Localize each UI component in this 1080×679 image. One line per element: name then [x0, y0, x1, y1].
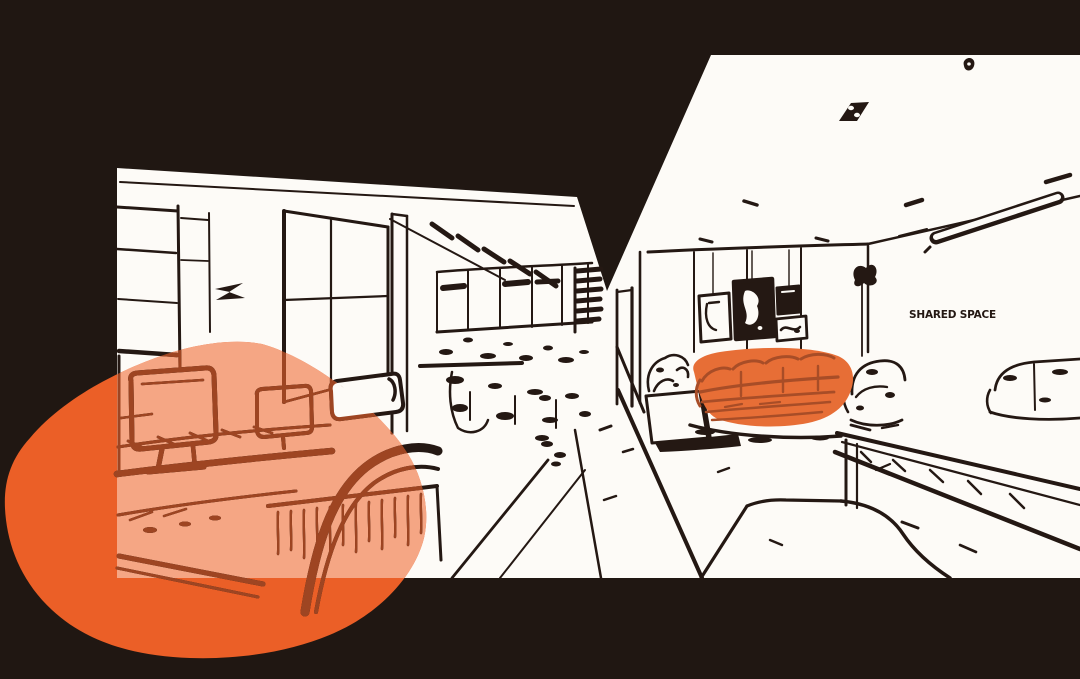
illustration-canvas: SHARED SPACE	[0, 0, 1080, 679]
wall-sign-text: SHARED SPACE	[909, 309, 996, 321]
office-illustration: SHARED SPACE	[0, 0, 1080, 679]
